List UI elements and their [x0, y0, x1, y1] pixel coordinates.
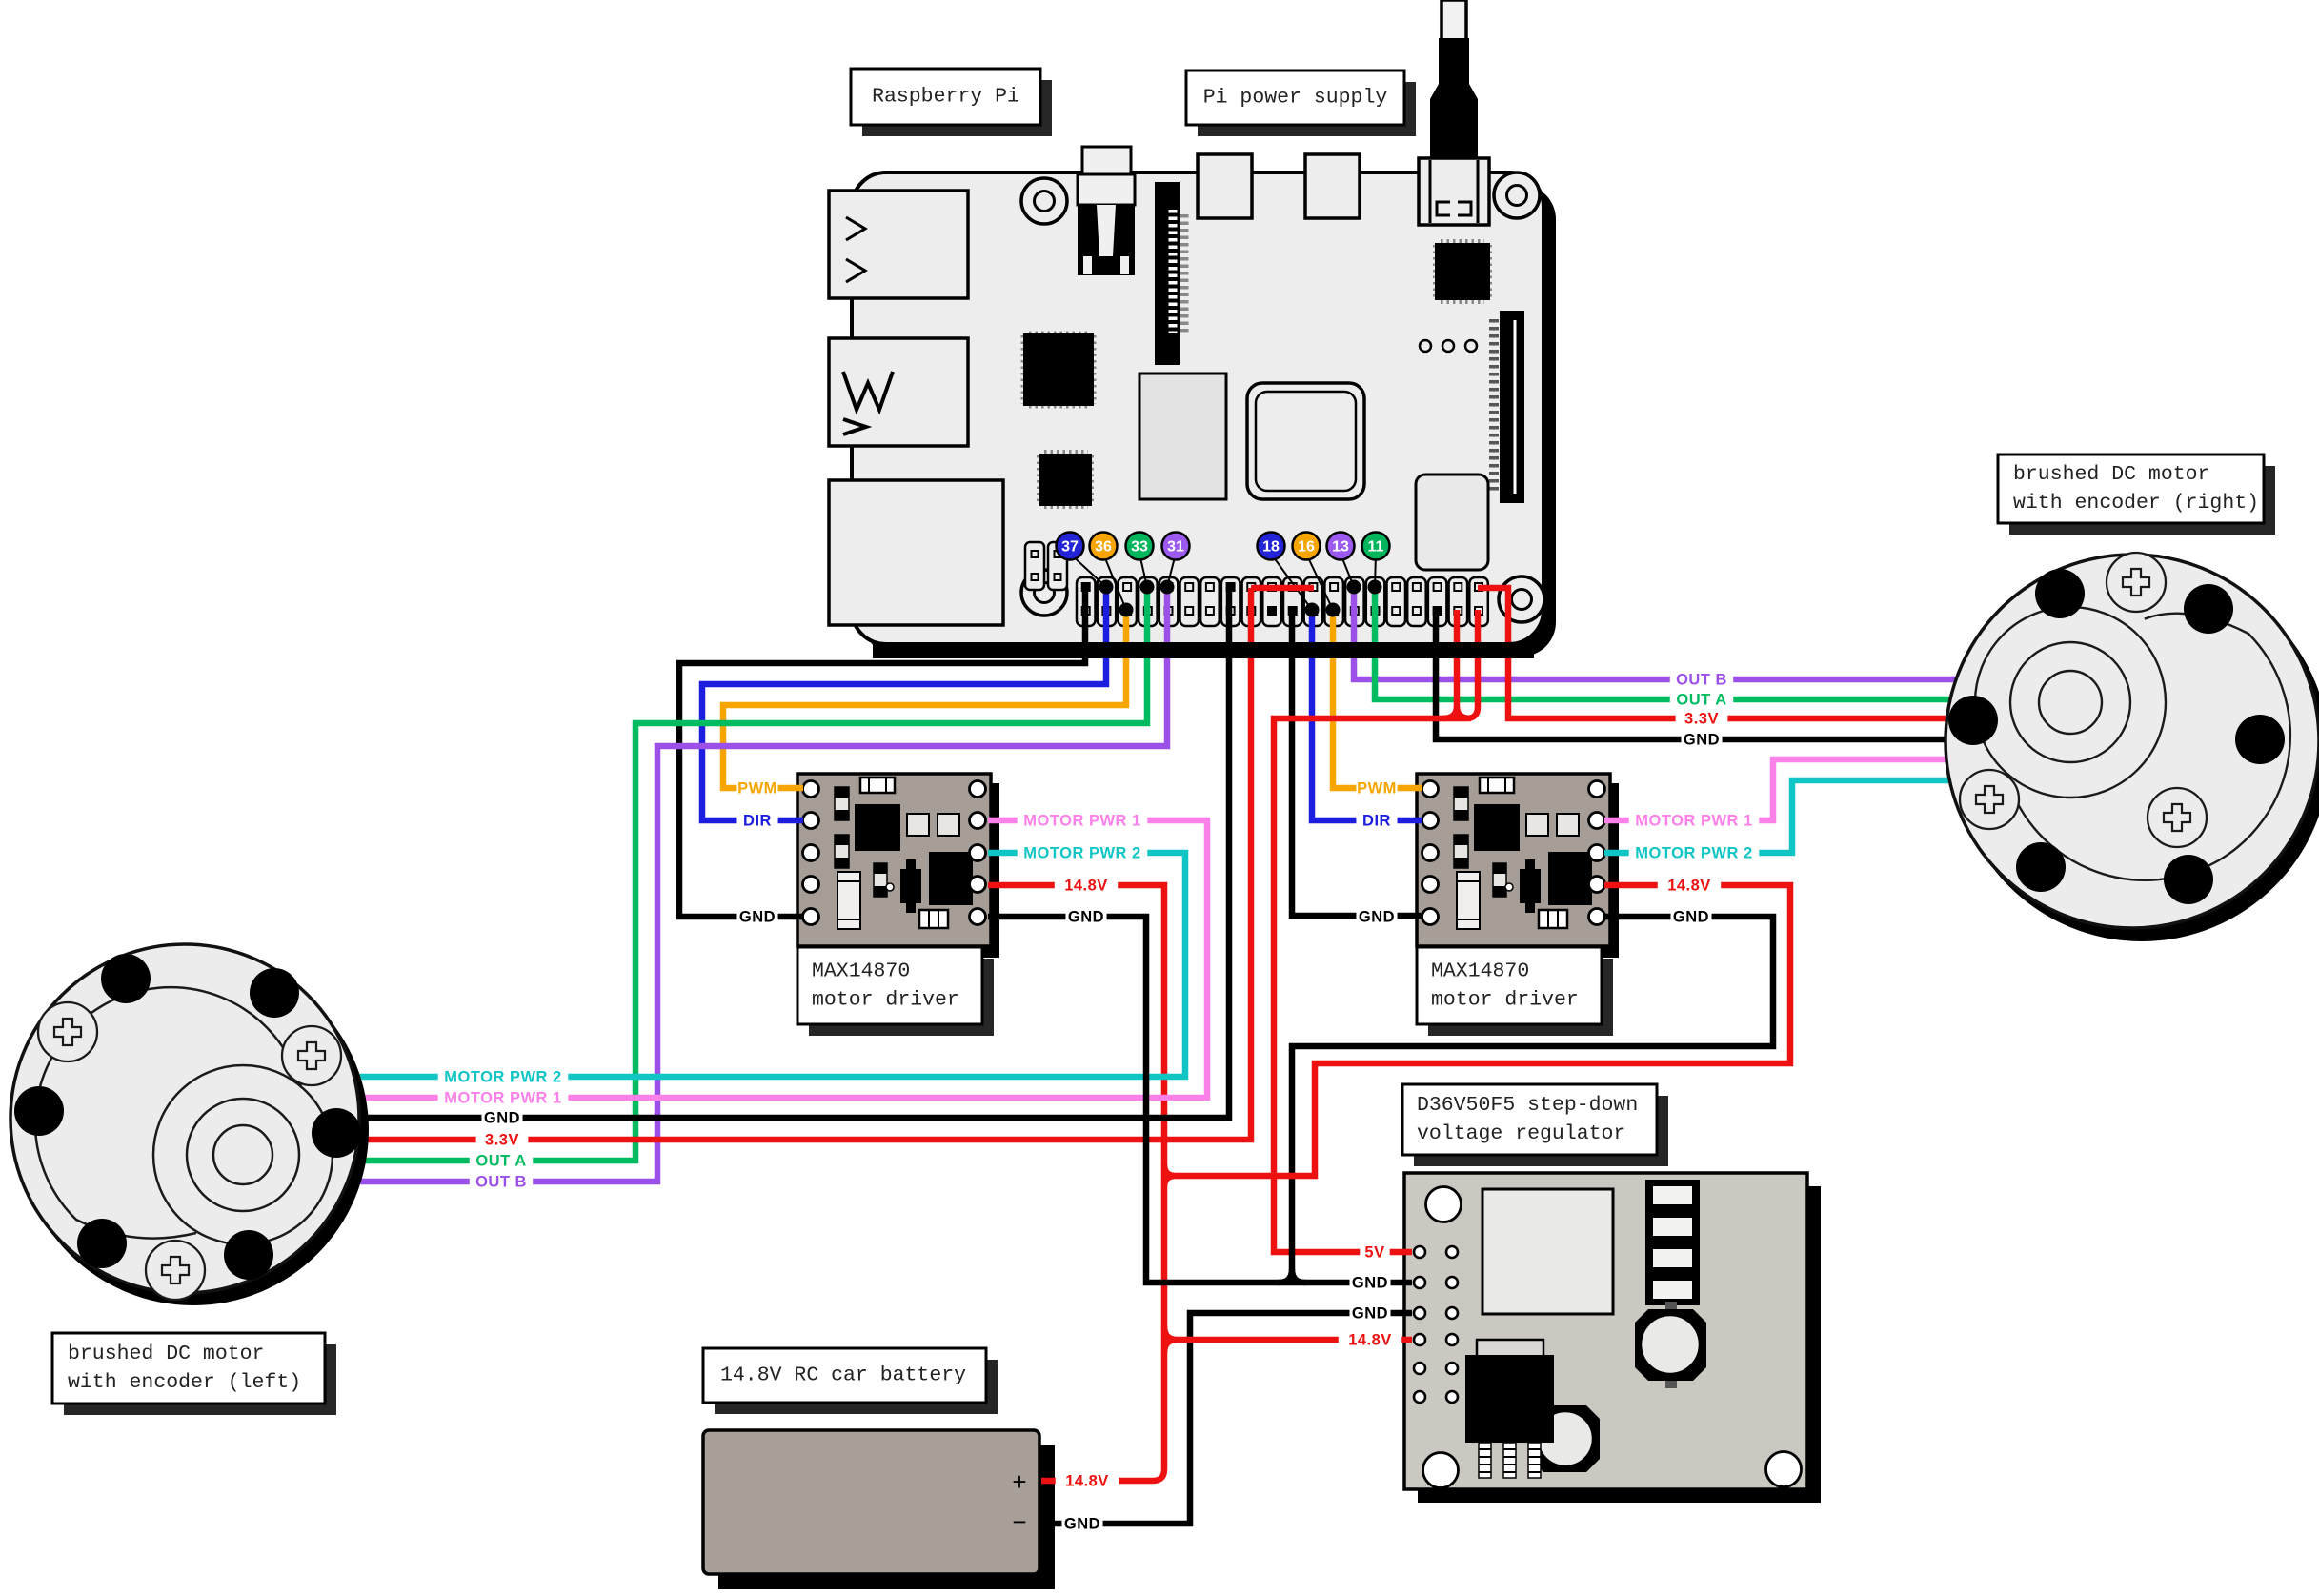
- svg-text:brushed DC motor: brushed DC motor: [68, 1343, 264, 1365]
- svg-text:GND: GND: [1352, 1275, 1388, 1292]
- svg-text:OUT B: OUT B: [475, 1174, 527, 1191]
- svg-text:OUT A: OUT A: [1676, 692, 1726, 709]
- svg-text:MAX14870: MAX14870: [812, 960, 910, 983]
- svg-text:brushed DC motor: brushed DC motor: [2013, 463, 2209, 486]
- svg-text:GND: GND: [1684, 732, 1720, 749]
- svg-text:motor driver: motor driver: [812, 989, 959, 1012]
- svg-text:MOTOR PWR 1: MOTOR PWR 1: [444, 1090, 561, 1107]
- svg-text:31: 31: [1167, 539, 1184, 556]
- svg-text:PWM: PWM: [1357, 780, 1397, 798]
- svg-text:33: 33: [1131, 539, 1148, 556]
- svg-text:14.8V: 14.8V: [1064, 878, 1108, 895]
- svg-text:5V: 5V: [1364, 1244, 1384, 1262]
- svg-text:MAX14870: MAX14870: [1431, 960, 1529, 983]
- svg-text:DIR: DIR: [1362, 813, 1391, 830]
- svg-text:OUT A: OUT A: [475, 1153, 526, 1170]
- svg-text:GND: GND: [1064, 1516, 1100, 1533]
- svg-text:MOTOR PWR 2: MOTOR PWR 2: [444, 1069, 561, 1086]
- svg-text:GND: GND: [484, 1110, 520, 1127]
- svg-text:GND: GND: [1673, 909, 1709, 926]
- svg-text:MOTOR PWR 2: MOTOR PWR 2: [1023, 845, 1140, 862]
- svg-text:14.8V RC car battery: 14.8V RC car battery: [720, 1364, 966, 1387]
- svg-text:11: 11: [1368, 539, 1384, 556]
- svg-text:MOTOR PWR 1: MOTOR PWR 1: [1635, 813, 1752, 830]
- svg-text:OUT B: OUT B: [1676, 672, 1727, 689]
- svg-text:18: 18: [1262, 539, 1280, 556]
- svg-text:36: 36: [1095, 539, 1112, 556]
- svg-text:37: 37: [1061, 539, 1079, 556]
- svg-text:GND: GND: [1352, 1305, 1388, 1323]
- svg-text:DIR: DIR: [743, 813, 772, 830]
- svg-text:16: 16: [1298, 539, 1315, 556]
- svg-text:14.8V: 14.8V: [1065, 1473, 1109, 1490]
- svg-text:with encoder (left): with encoder (left): [68, 1371, 301, 1394]
- svg-text:MOTOR PWR 2: MOTOR PWR 2: [1635, 845, 1752, 862]
- svg-text:GND: GND: [739, 909, 776, 926]
- svg-text:GND: GND: [1359, 909, 1395, 926]
- svg-text:MOTOR PWR 1: MOTOR PWR 1: [1023, 813, 1140, 830]
- svg-text:14.8V: 14.8V: [1667, 878, 1711, 895]
- svg-text:PWM: PWM: [737, 780, 777, 798]
- svg-text:13: 13: [1332, 539, 1349, 556]
- svg-text:D36V50F5 step-down: D36V50F5 step-down: [1417, 1094, 1638, 1117]
- svg-text:3.3V: 3.3V: [1684, 711, 1719, 728]
- svg-text:voltage regulator: voltage regulator: [1417, 1122, 1625, 1145]
- svg-text:14.8V: 14.8V: [1348, 1332, 1392, 1349]
- svg-text:Raspberry Pi: Raspberry Pi: [872, 86, 1019, 109]
- svg-text:motor driver: motor driver: [1431, 989, 1579, 1012]
- svg-text:+: +: [1012, 1467, 1026, 1496]
- svg-text:with encoder (right): with encoder (right): [2013, 492, 2259, 515]
- svg-text:−: −: [1012, 1507, 1026, 1536]
- svg-text:3.3V: 3.3V: [485, 1132, 519, 1149]
- svg-text:Pi power supply: Pi power supply: [1203, 87, 1388, 110]
- svg-text:GND: GND: [1068, 909, 1104, 926]
